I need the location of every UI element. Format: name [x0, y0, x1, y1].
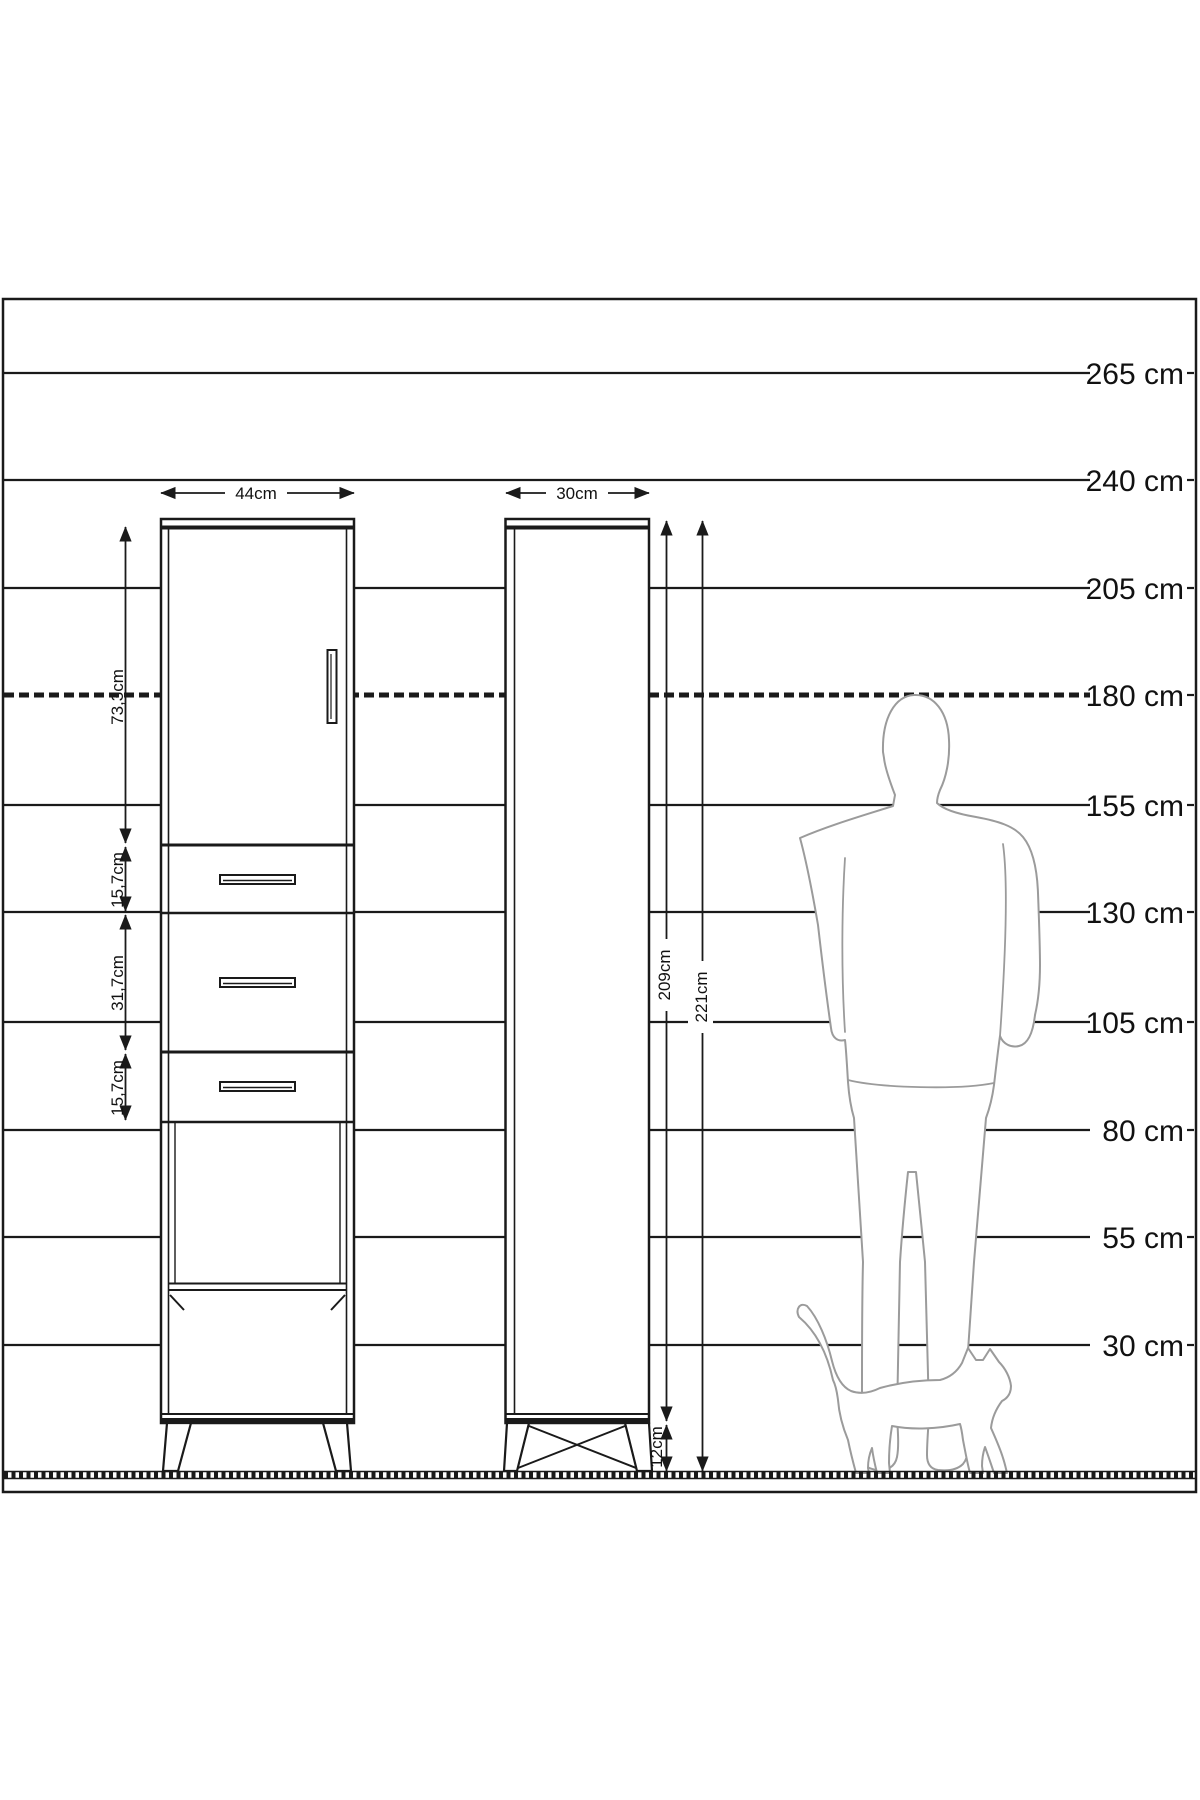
ruler-label: 105 cm	[1086, 1007, 1184, 1040]
front-section-height-label: 15,7cm	[108, 1060, 127, 1116]
door-handle	[328, 650, 337, 723]
front-section-height-label: 15,7cm	[108, 852, 127, 908]
drawer-handle	[220, 978, 295, 987]
ruler-label: 30 cm	[1102, 1330, 1184, 1363]
dimension-diagram-page: 265 cm 240 cm 205 cm 180 cm 155 cm 130 c…	[0, 0, 1200, 1800]
ruler-label: 80 cm	[1102, 1115, 1184, 1148]
drawer-handle	[220, 875, 295, 884]
side-depth-label: 30cm	[556, 484, 598, 503]
cabinet-front-view	[161, 519, 354, 1471]
front-width-label: 44cm	[235, 484, 277, 503]
ruler-label: 265 cm	[1086, 358, 1184, 391]
ruler-label: 130 cm	[1086, 897, 1184, 930]
cabinet-side-view	[504, 519, 652, 1471]
drawer-handle	[220, 1082, 295, 1091]
ruler-label: 205 cm	[1086, 573, 1184, 606]
body-height-label: 209cm	[655, 949, 674, 1000]
total-height-label: 221cm	[692, 971, 711, 1022]
ruler-label: 180 cm	[1086, 680, 1184, 713]
furniture-dimension-diagram: 265 cm 240 cm 205 cm 180 cm 155 cm 130 c…	[0, 0, 1200, 1800]
ruler-label: 155 cm	[1086, 790, 1184, 823]
ruler-label: 240 cm	[1086, 465, 1184, 498]
front-section-height-label: 31,7cm	[108, 955, 127, 1011]
ruler-label: 55 cm	[1102, 1222, 1184, 1255]
ruler-row-180-dashed: 180 cm	[1086, 680, 1194, 713]
leg-height-label: 12cm	[647, 1426, 666, 1468]
